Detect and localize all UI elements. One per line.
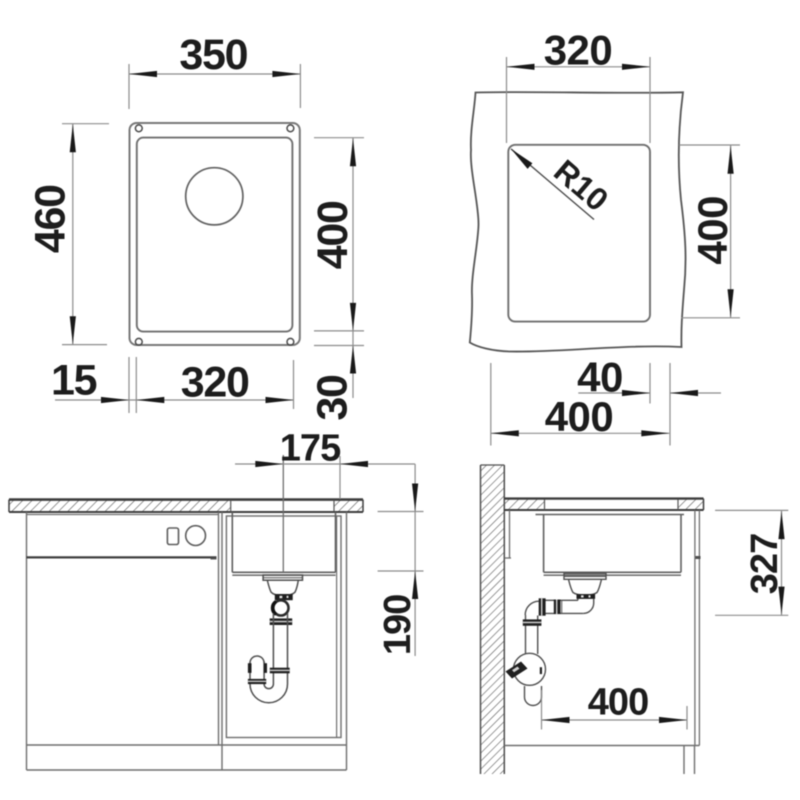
svg-text:190: 190 [377, 595, 419, 655]
svg-text:320: 320 [544, 26, 613, 73]
svg-text:30: 30 [309, 375, 357, 421]
svg-text:400: 400 [588, 682, 648, 724]
svg-text:400: 400 [689, 196, 736, 265]
svg-text:400: 400 [309, 201, 357, 269]
svg-text:350: 350 [179, 31, 247, 79]
svg-text:15: 15 [51, 356, 97, 404]
svg-text:327: 327 [744, 534, 786, 594]
svg-text:175: 175 [280, 428, 341, 470]
svg-text:320: 320 [181, 359, 249, 407]
svg-text:400: 400 [545, 393, 614, 440]
svg-text:460: 460 [27, 185, 75, 253]
